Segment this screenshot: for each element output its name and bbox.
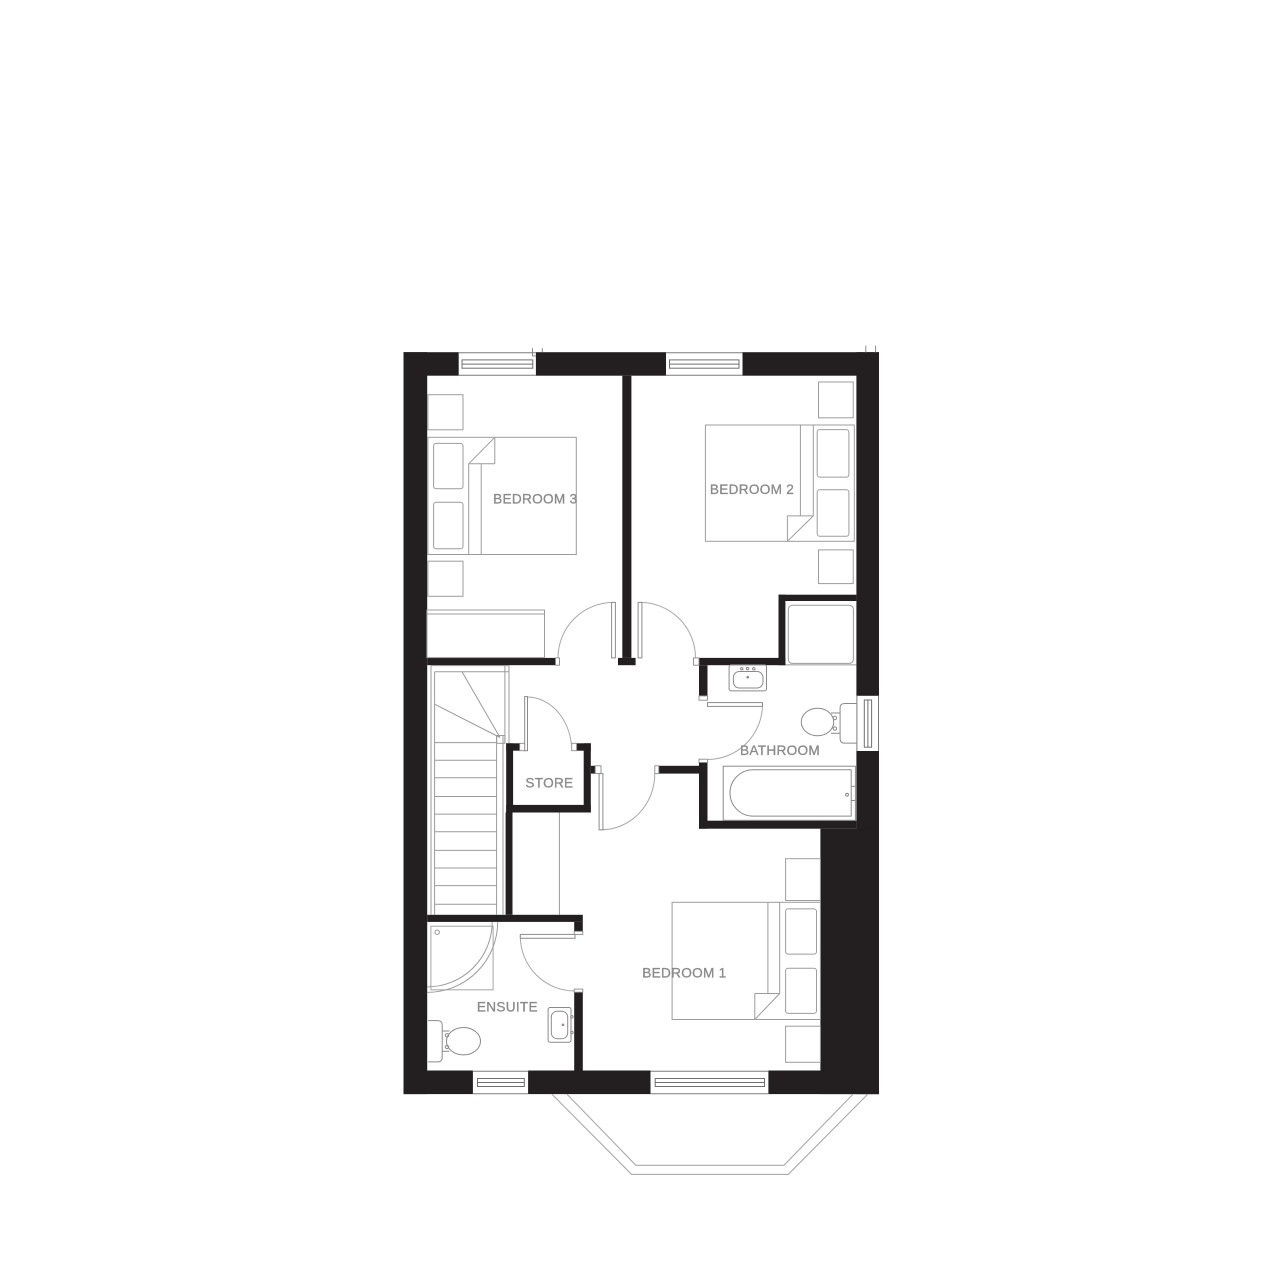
svg-text:BEDROOM 3: BEDROOM 3 xyxy=(493,491,577,506)
svg-text:ENSUITE: ENSUITE xyxy=(477,1000,538,1015)
svg-text:BATHROOM: BATHROOM xyxy=(740,743,820,758)
svg-text:BEDROOM 1: BEDROOM 1 xyxy=(642,966,726,981)
svg-text:BEDROOM 2: BEDROOM 2 xyxy=(710,482,794,497)
svg-text:STORE: STORE xyxy=(525,776,573,791)
